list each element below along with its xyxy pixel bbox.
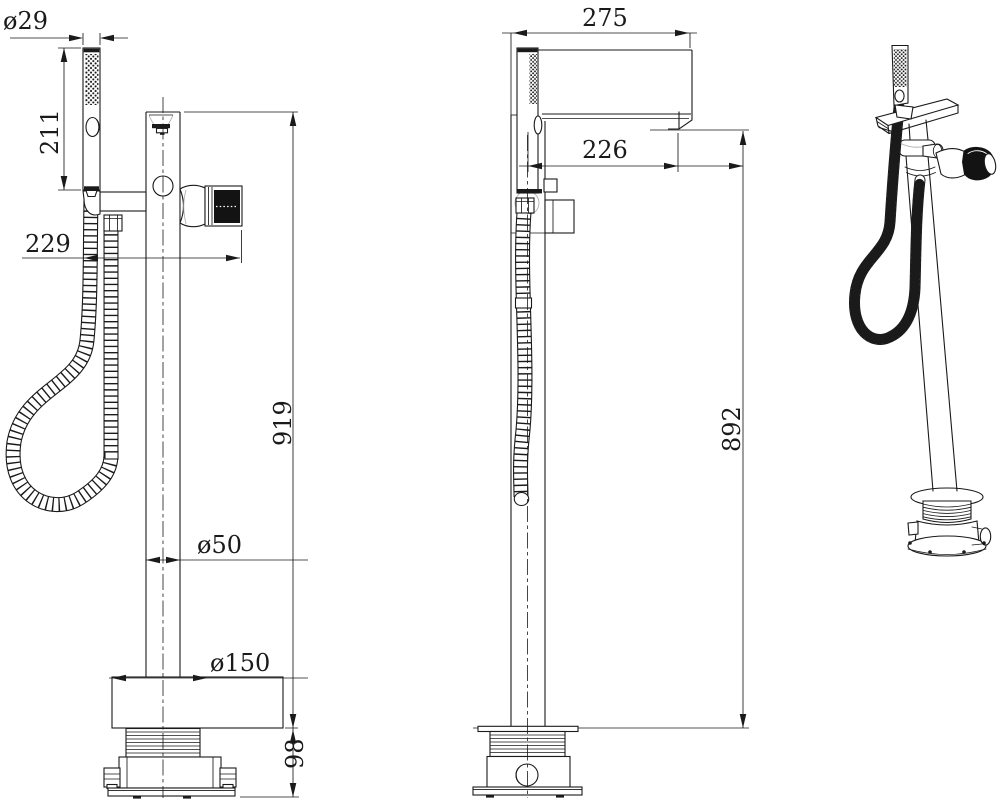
front-view: ø29 211 229 919 ø50 ø150 — [3, 7, 309, 799]
valve-bell — [180, 185, 205, 226]
drawing-sheet: ø29 211 229 919 ø50 ø150 — [0, 0, 1000, 800]
dim-spout-height: 892 — [718, 406, 746, 452]
dim-hose-offset: 229 — [25, 230, 71, 258]
side-view: 275 226 892 — [473, 4, 749, 798]
iso-base — [908, 501, 991, 556]
side-base — [473, 726, 749, 797]
perspective-view — [855, 46, 998, 557]
side-spout — [538, 50, 692, 129]
dim-spout-overall: 275 — [582, 4, 628, 32]
dim-underfloor-depth: 98 — [281, 738, 309, 769]
iso-spout — [876, 99, 958, 134]
dim-column-diameter: ø50 — [197, 531, 242, 559]
iso-wand — [892, 46, 913, 120]
front-base — [104, 677, 283, 799]
dim-overall-height: 919 — [269, 400, 297, 446]
side-dimensions: 275 226 892 — [502, 4, 749, 728]
faucet-dimension-drawing: ø29 211 229 919 ø50 ø150 — [0, 0, 1000, 800]
dim-handshower-diameter: ø29 — [3, 7, 48, 35]
iso-knob — [936, 147, 997, 179]
side-hose — [514, 191, 539, 506]
temperature-knob — [205, 186, 242, 226]
handshower-wand — [83, 48, 100, 197]
dim-base-cover-diameter: ø150 — [210, 649, 270, 677]
dim-handshower-length: 211 — [36, 109, 64, 155]
side-wand — [517, 48, 542, 193]
dim-spout-reach: 226 — [582, 136, 628, 164]
